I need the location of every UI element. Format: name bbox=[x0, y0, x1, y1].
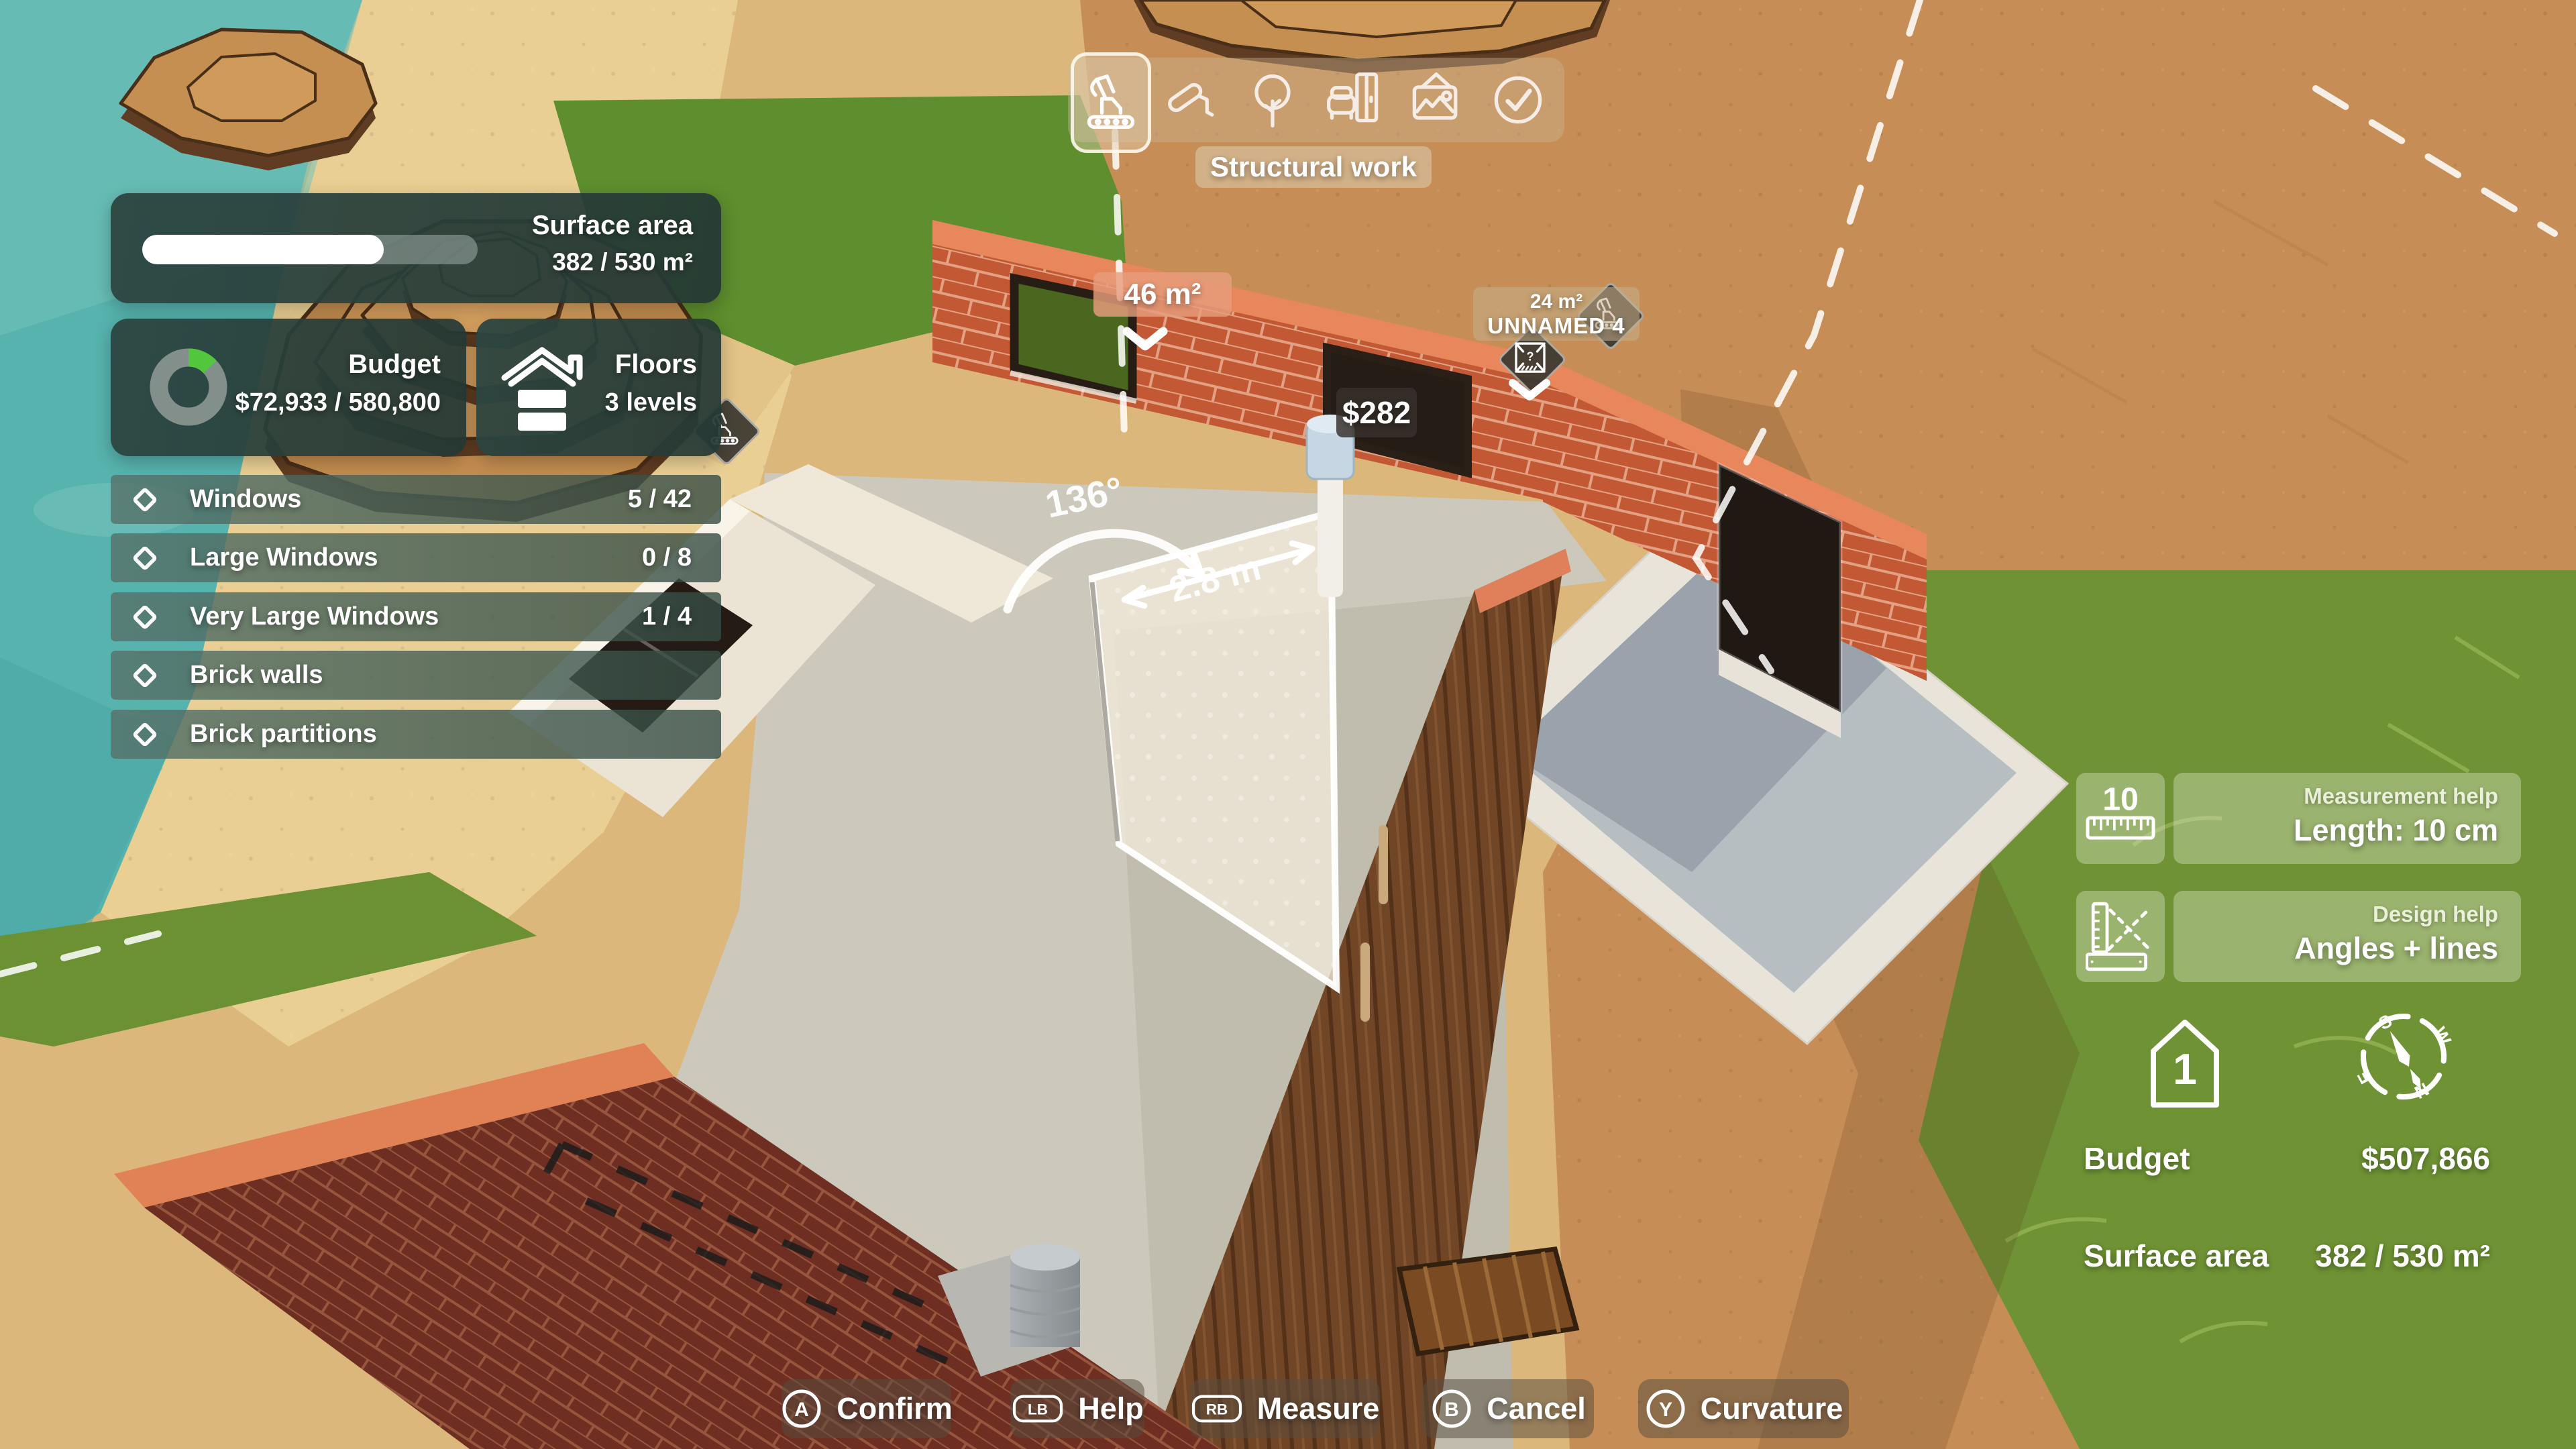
svg-text:S: S bbox=[2375, 1010, 2396, 1034]
chevron-down-icon bbox=[1122, 326, 1169, 356]
curvature-label: Curvature bbox=[1701, 1391, 1843, 1426]
house-floors-icon bbox=[495, 339, 589, 436]
tab-structural-work[interactable] bbox=[1071, 52, 1151, 153]
surface-area-value: 382 / 530 m² bbox=[552, 248, 693, 276]
requirement-label: Brick partitions bbox=[190, 720, 377, 749]
room-tag: 24 m² UNNAMED 4 bbox=[1473, 287, 1640, 341]
design-help-panel: Design help Angles + lines bbox=[2173, 891, 2521, 982]
ruler-icon: 10 bbox=[2084, 781, 2157, 856]
requirement-label: Brick walls bbox=[190, 661, 323, 690]
requirement-row-large-windows: Large Windows 0 / 8 bbox=[111, 533, 721, 582]
budget-card: Budget $72,933 / 580,800 bbox=[111, 319, 466, 456]
check-circle-icon bbox=[1487, 69, 1549, 131]
diamond-icon bbox=[129, 719, 160, 750]
surface-area-card: Surface area 382 / 530 m² bbox=[111, 193, 721, 303]
curvature-button[interactable]: Y Curvature bbox=[1638, 1379, 1849, 1438]
requirement-value: 1 / 4 bbox=[642, 602, 692, 631]
measurement-help-panel: Measurement help Length: 10 cm bbox=[2173, 773, 2521, 864]
measurement-help-title: Measurement help bbox=[2304, 784, 2498, 809]
room-name-value: UNNAMED 4 bbox=[1487, 314, 1625, 338]
requirement-value: 5 / 42 bbox=[628, 485, 692, 514]
requirement-row-brick-partitions: Brick partitions bbox=[111, 710, 721, 759]
picture-icon bbox=[1405, 69, 1467, 131]
cost-value: $282 bbox=[1342, 394, 1411, 431]
budget-label: Budget bbox=[348, 350, 441, 380]
svg-text:B: B bbox=[1444, 1399, 1459, 1421]
budget-value: $72,933 / 580,800 bbox=[235, 388, 441, 417]
furniture-icon bbox=[1324, 69, 1385, 131]
floors-value: 3 levels bbox=[605, 388, 697, 417]
room-area-value: 24 m² bbox=[1530, 290, 1582, 314]
diamond-icon bbox=[129, 543, 160, 574]
requirement-label: Very Large Windows bbox=[190, 602, 439, 631]
compass-indicator: S N E W bbox=[2353, 1006, 2454, 1110]
requirement-label: Large Windows bbox=[190, 543, 378, 572]
excavator-icon bbox=[1080, 72, 1142, 133]
house-level-icon: 1 bbox=[2145, 1014, 2224, 1110]
confirm-label: Confirm bbox=[837, 1391, 953, 1426]
design-help-icon-tile bbox=[2076, 891, 2165, 982]
design-help-value: Angles + lines bbox=[2294, 931, 2498, 966]
requirement-row-very-large-windows: Very Large Windows 1 / 4 bbox=[111, 592, 721, 641]
tab-finishes[interactable] bbox=[1154, 68, 1228, 131]
totals-surface-row: Surface area 382 / 530 m² bbox=[2080, 1238, 2490, 1278]
totals-surface-label: Surface area bbox=[2084, 1238, 2269, 1274]
tab-validate[interactable] bbox=[1481, 68, 1555, 131]
door-handle bbox=[1360, 943, 1370, 1022]
gamepad-a-icon: A bbox=[780, 1387, 823, 1430]
diamond-icon bbox=[129, 660, 160, 691]
floors-label: Floors bbox=[615, 350, 697, 380]
tab-landscaping[interactable] bbox=[1236, 68, 1309, 131]
gamepad-rb-icon: RB bbox=[1190, 1387, 1244, 1430]
gamepad-b-icon: B bbox=[1430, 1387, 1473, 1430]
wall-area-tag: 46 m² bbox=[1093, 272, 1232, 317]
paint-roller-icon bbox=[1160, 69, 1222, 131]
room-box-icon: ? bbox=[1512, 339, 1548, 376]
surface-progress-fill bbox=[142, 235, 384, 264]
gamepad-y-icon: Y bbox=[1644, 1387, 1687, 1430]
svg-text:?: ? bbox=[1527, 350, 1534, 364]
floors-card: Floors 3 levels bbox=[476, 319, 721, 456]
confirm-button[interactable]: A Confirm bbox=[782, 1379, 951, 1438]
measurement-help-icon-tile: 10 bbox=[2076, 773, 2165, 864]
tree-icon bbox=[1242, 69, 1303, 131]
cancel-button[interactable]: B Cancel bbox=[1422, 1379, 1594, 1438]
measure-label: Measure bbox=[1257, 1391, 1380, 1426]
diamond-icon bbox=[129, 602, 160, 633]
chevron-down-icon bbox=[1508, 378, 1551, 406]
measurement-help-value: Length: 10 cm bbox=[2294, 813, 2498, 848]
svg-text:1: 1 bbox=[2173, 1044, 2197, 1093]
cost-tag: $282 bbox=[1336, 388, 1417, 437]
svg-text:A: A bbox=[794, 1399, 809, 1421]
surface-area-label: Surface area bbox=[532, 211, 693, 241]
category-toolbar bbox=[1068, 58, 1564, 142]
measure-button[interactable]: RB Measure bbox=[1189, 1379, 1380, 1438]
angles-lines-icon bbox=[2086, 900, 2155, 973]
requirement-row-brick-walls: Brick walls bbox=[111, 651, 721, 700]
wall-area-value: 46 m² bbox=[1124, 278, 1201, 311]
door-handle bbox=[1379, 825, 1388, 904]
svg-text:RB: RB bbox=[1205, 1401, 1228, 1417]
active-category-text: Structural work bbox=[1210, 151, 1417, 183]
requirement-row-windows: Windows 5 / 42 bbox=[111, 475, 721, 524]
requirement-label: Windows bbox=[190, 485, 301, 514]
help-label: Help bbox=[1078, 1391, 1144, 1426]
game-viewport: 2.8 m 136° 46 m² $282 24 m² UNNAMED 4 ? bbox=[0, 0, 2576, 1449]
surface-progress-track bbox=[142, 235, 478, 264]
design-help-title: Design help bbox=[2373, 902, 2498, 927]
svg-text:10: 10 bbox=[2102, 782, 2139, 818]
diamond-icon bbox=[129, 484, 160, 515]
cancel-label: Cancel bbox=[1487, 1391, 1586, 1426]
tab-furnishing[interactable] bbox=[1318, 68, 1391, 131]
budget-donut bbox=[138, 336, 239, 438]
totals-budget-label: Budget bbox=[2084, 1140, 2190, 1177]
tab-decoration[interactable] bbox=[1399, 68, 1473, 131]
help-button[interactable]: LB Help bbox=[1010, 1379, 1144, 1438]
totals-surface-value: 382 / 530 m² bbox=[2315, 1238, 2490, 1274]
svg-text:LB: LB bbox=[1028, 1401, 1048, 1417]
compass-icon: S N E W bbox=[2353, 1006, 2454, 1107]
gamepad-lb-icon: LB bbox=[1011, 1387, 1065, 1430]
active-category-label: Structural work bbox=[1195, 146, 1432, 188]
requirement-value: 0 / 8 bbox=[642, 543, 692, 572]
totals-budget-row: Budget $507,866 bbox=[2080, 1140, 2490, 1181]
svg-text:Y: Y bbox=[1659, 1399, 1672, 1421]
totals-budget-value: $507,866 bbox=[2361, 1140, 2490, 1177]
floor-level-indicator: 1 bbox=[2145, 1014, 2224, 1113]
